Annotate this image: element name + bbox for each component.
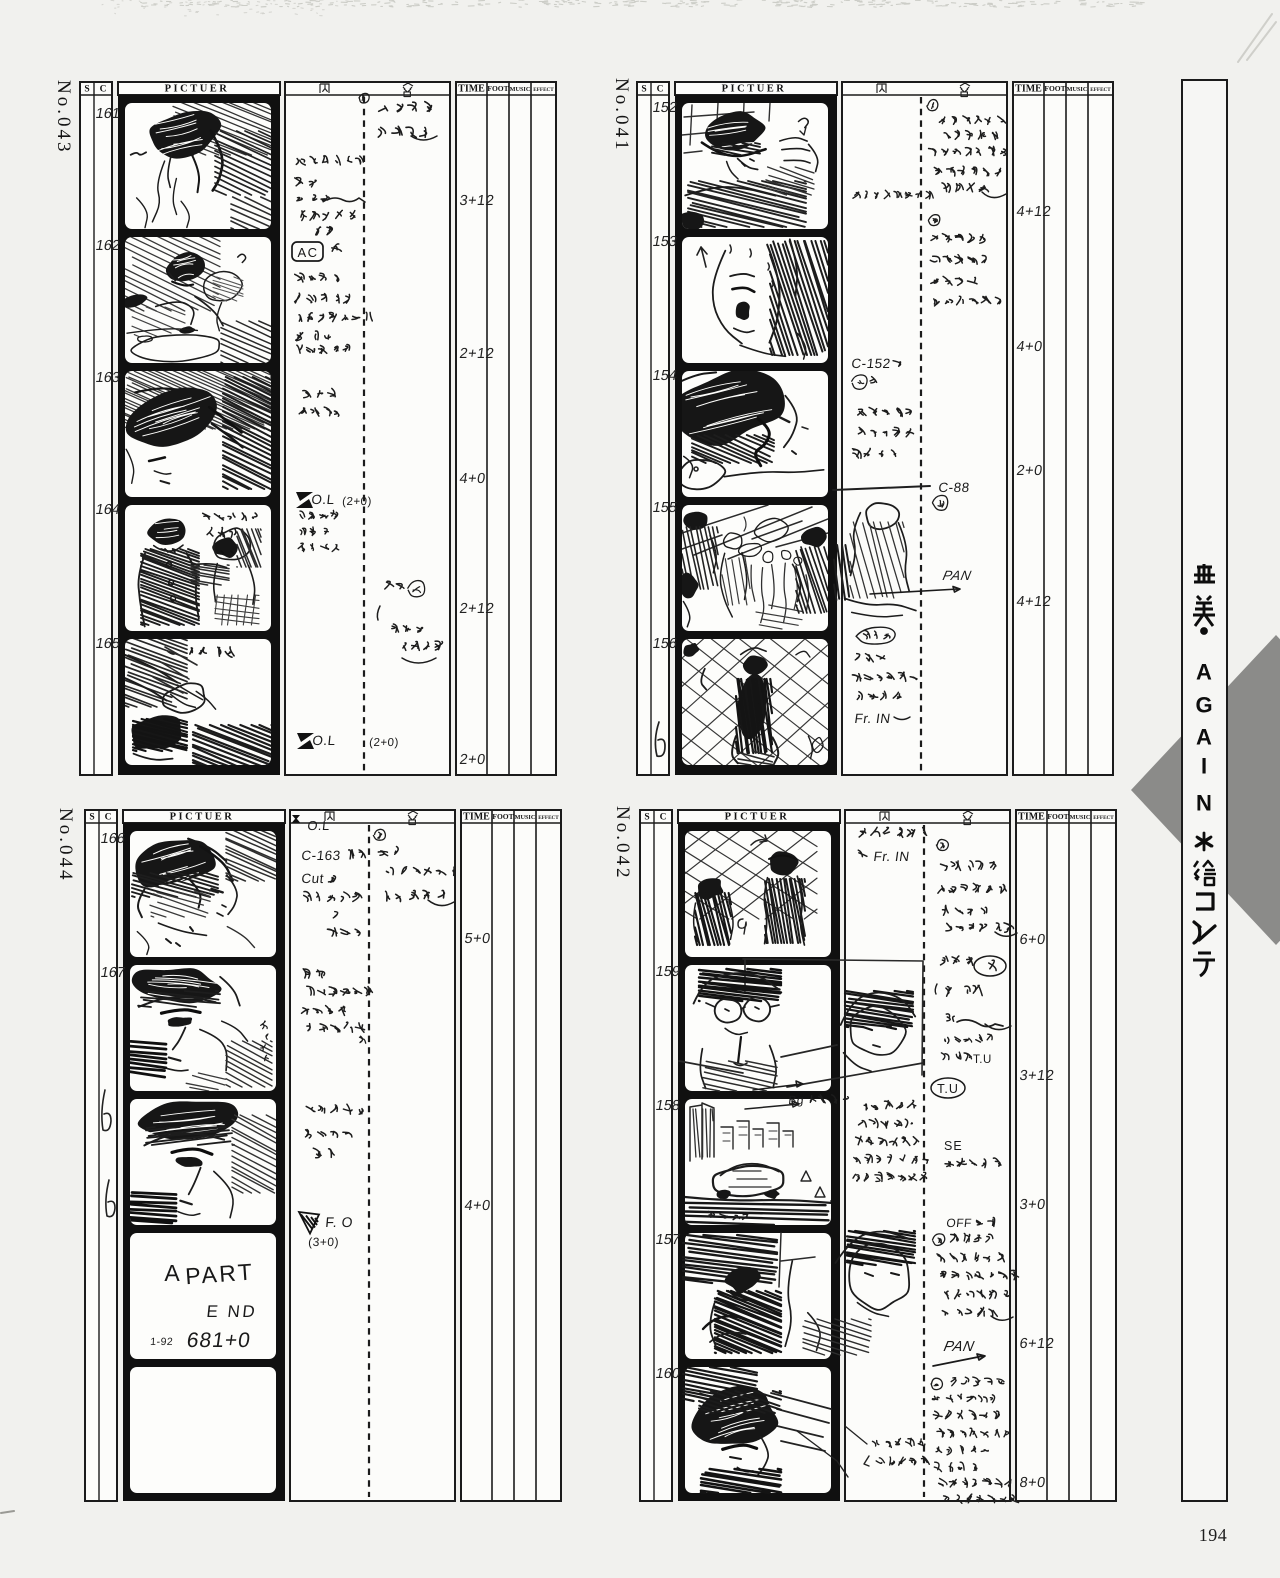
svg-text:T.U: T.U bbox=[973, 1054, 992, 1066]
svg-text:(2+0): (2+0) bbox=[342, 496, 372, 508]
svg-text:N: N bbox=[1196, 791, 1212, 816]
svg-text:PICTUER: PICTUER bbox=[725, 812, 790, 823]
svg-text:2+12: 2+12 bbox=[458, 346, 495, 362]
svg-text:SE: SE bbox=[944, 1139, 963, 1153]
svg-text:PAN: PAN bbox=[941, 568, 972, 583]
svg-text:681+0: 681+0 bbox=[185, 1329, 252, 1352]
svg-text:FOOT: FOOT bbox=[1047, 812, 1068, 821]
svg-text:Cut: Cut bbox=[301, 871, 325, 886]
svg-text:157: 157 bbox=[654, 1232, 681, 1248]
svg-text:TIME: TIME bbox=[458, 84, 485, 95]
svg-text:No.044: No.044 bbox=[55, 808, 76, 882]
svg-text:PART: PART bbox=[184, 1258, 255, 1289]
svg-text:No.043: No.043 bbox=[53, 80, 74, 154]
svg-text:I: I bbox=[1201, 754, 1207, 779]
svg-text:164: 164 bbox=[94, 502, 121, 518]
svg-text:160: 160 bbox=[654, 1366, 681, 1382]
svg-text:C-88: C-88 bbox=[938, 480, 971, 495]
svg-text:G: G bbox=[1195, 693, 1212, 718]
svg-text:C: C bbox=[660, 813, 667, 823]
svg-text:153: 153 bbox=[651, 234, 678, 250]
svg-text:A: A bbox=[164, 1260, 180, 1286]
svg-text:Fr. IN: Fr. IN bbox=[873, 849, 911, 864]
svg-text:2+0: 2+0 bbox=[1015, 463, 1043, 479]
svg-text:PICTUER: PICTUER bbox=[722, 84, 787, 95]
svg-text:(2+0): (2+0) bbox=[369, 737, 399, 749]
svg-text:FOOT: FOOT bbox=[492, 812, 513, 821]
svg-text:MUSIC: MUSIC bbox=[510, 86, 531, 93]
svg-text:Bg: Bg bbox=[788, 1093, 805, 1107]
svg-text:3+12: 3+12 bbox=[458, 193, 495, 209]
svg-text:S: S bbox=[644, 813, 649, 823]
svg-text:1-92: 1-92 bbox=[150, 1336, 174, 1348]
svg-text:156: 156 bbox=[651, 636, 678, 652]
svg-text:No.041: No.041 bbox=[611, 78, 632, 152]
svg-text:194: 194 bbox=[1199, 1525, 1228, 1545]
svg-text:4+0: 4+0 bbox=[463, 1198, 491, 1214]
svg-text:162: 162 bbox=[94, 238, 121, 254]
svg-text:OFF: OFF bbox=[946, 1216, 973, 1230]
svg-text:TIME: TIME bbox=[1018, 812, 1045, 823]
svg-text:8+0: 8+0 bbox=[1018, 1475, 1046, 1491]
svg-text:TIME: TIME bbox=[1015, 84, 1042, 95]
svg-text:5+0: 5+0 bbox=[463, 931, 491, 947]
svg-text:AC: AC bbox=[297, 245, 318, 260]
svg-text:159: 159 bbox=[654, 964, 681, 980]
svg-text:2+12: 2+12 bbox=[458, 601, 495, 617]
svg-text:Fr. IN: Fr. IN bbox=[854, 711, 892, 726]
svg-text:4+12: 4+12 bbox=[1015, 204, 1052, 220]
svg-text:PAN: PAN bbox=[942, 1339, 976, 1355]
svg-text:167: 167 bbox=[99, 965, 126, 981]
svg-text:165: 165 bbox=[94, 636, 121, 652]
svg-text:4+0: 4+0 bbox=[1015, 339, 1043, 355]
svg-text:6+0: 6+0 bbox=[1018, 932, 1046, 948]
svg-text:MUSIC: MUSIC bbox=[1070, 814, 1091, 821]
svg-text:2+0: 2+0 bbox=[458, 752, 486, 768]
svg-text:TIME: TIME bbox=[463, 812, 490, 823]
svg-text:F. O: F. O bbox=[325, 1214, 354, 1230]
svg-text:A: A bbox=[1196, 660, 1212, 685]
svg-text:FOOT: FOOT bbox=[1044, 84, 1065, 93]
svg-text:S: S bbox=[84, 85, 89, 95]
svg-text:No.042: No.042 bbox=[612, 806, 633, 880]
svg-text:3+0: 3+0 bbox=[1018, 1197, 1046, 1213]
svg-text:PICTUER: PICTUER bbox=[165, 84, 230, 95]
svg-text:4+0: 4+0 bbox=[458, 471, 486, 487]
svg-text:MUSIC: MUSIC bbox=[1067, 86, 1088, 93]
svg-text:161: 161 bbox=[94, 106, 121, 122]
svg-text:A: A bbox=[1196, 725, 1212, 750]
svg-text:163: 163 bbox=[94, 370, 121, 386]
svg-text:O.L: O.L bbox=[311, 492, 336, 507]
svg-text:(3+0): (3+0) bbox=[308, 1235, 340, 1249]
svg-text:C-152: C-152 bbox=[851, 356, 892, 371]
svg-text:O.L: O.L bbox=[312, 733, 337, 748]
svg-text:154: 154 bbox=[651, 368, 678, 384]
svg-text:166: 166 bbox=[99, 831, 126, 847]
svg-text:4+12: 4+12 bbox=[1015, 594, 1052, 610]
svg-text:S: S bbox=[641, 85, 646, 95]
svg-text:EFFECT: EFFECT bbox=[1090, 87, 1111, 93]
svg-text:C-163: C-163 bbox=[301, 848, 342, 863]
svg-text:T.U: T.U bbox=[937, 1082, 959, 1096]
svg-text:158: 158 bbox=[654, 1098, 681, 1114]
svg-text:C: C bbox=[100, 85, 107, 95]
svg-text:PICTUER: PICTUER bbox=[170, 812, 235, 823]
svg-text:EFFECT: EFFECT bbox=[533, 87, 554, 93]
svg-text:155: 155 bbox=[651, 500, 678, 516]
svg-text:MUSIC: MUSIC bbox=[515, 814, 536, 821]
svg-text:EFFECT: EFFECT bbox=[1093, 815, 1114, 821]
svg-text:C: C bbox=[105, 813, 112, 823]
svg-text:C: C bbox=[657, 85, 664, 95]
svg-text:FOOT: FOOT bbox=[487, 84, 508, 93]
svg-text:3+12: 3+12 bbox=[1018, 1068, 1055, 1084]
svg-text:S: S bbox=[89, 813, 94, 823]
svg-text:E ND: E ND bbox=[206, 1302, 259, 1321]
svg-text:6+12: 6+12 bbox=[1018, 1336, 1055, 1352]
svg-text:EFFECT: EFFECT bbox=[538, 815, 559, 821]
svg-text:152: 152 bbox=[651, 100, 678, 116]
svg-text:O.L: O.L bbox=[307, 818, 331, 833]
